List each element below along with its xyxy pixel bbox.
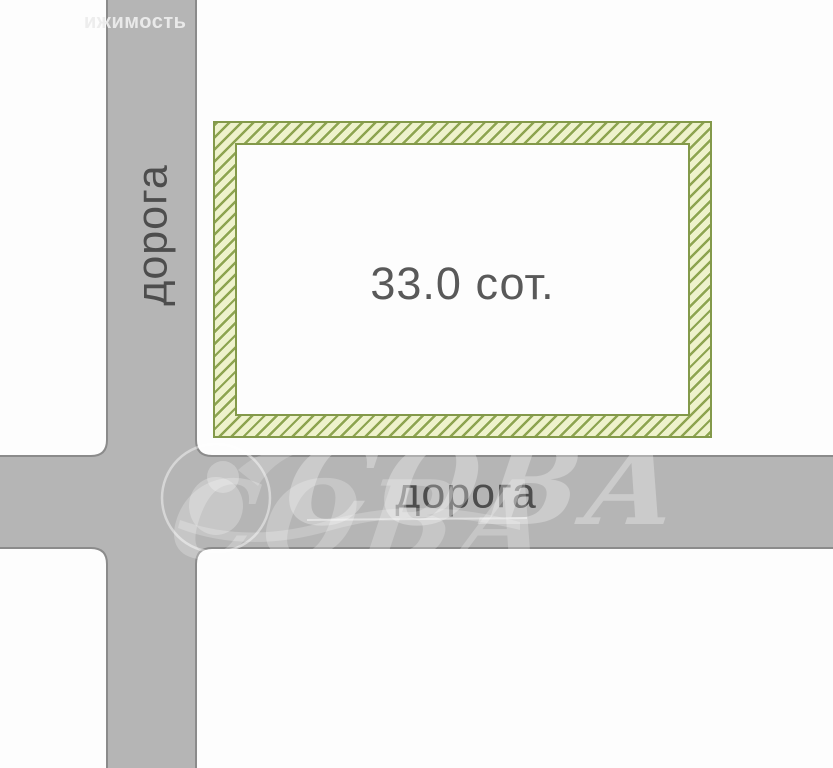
top-watermark-text: ижимость	[84, 11, 186, 34]
plot-area-label: 33.0 сот.	[370, 249, 554, 310]
land-plot-area: 33.0 сот.	[235, 143, 690, 416]
land-plot-boundary: 33.0 сот.	[213, 121, 712, 438]
vertical-road-label: дорога	[129, 164, 178, 306]
land-plot-scheme: дорога дорога 33.0 сот. ижимость СОВА СО…	[0, 0, 833, 768]
horizontal-road-label: дорога	[395, 470, 537, 519]
